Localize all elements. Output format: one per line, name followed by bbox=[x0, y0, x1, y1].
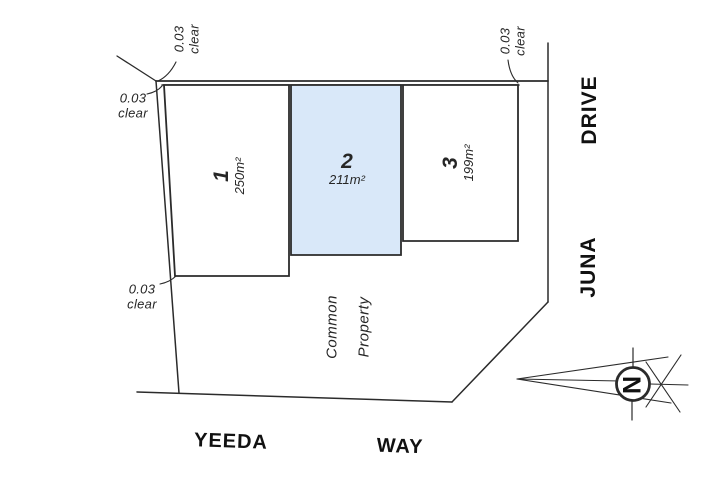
north-flare-line-2 bbox=[646, 355, 681, 407]
north-needle-mid-line bbox=[517, 379, 620, 381]
north-arrow-icon bbox=[517, 348, 688, 420]
north-flare-line-1 bbox=[646, 362, 680, 412]
leader-bottom-left bbox=[160, 276, 176, 284]
lot-1-label: 1 250m² bbox=[211, 158, 249, 195]
site-plan-canvas: 0.03 clear 0.03 clear 0.03 clear 0.03 cl… bbox=[0, 0, 712, 480]
lot-2-label: 2 211m² bbox=[329, 151, 365, 189]
clearance-label-left: 0.03 clear bbox=[118, 91, 148, 122]
lot-2-area: 211m² bbox=[329, 172, 365, 189]
leader-top-left bbox=[158, 62, 176, 81]
street-label-juna: JUNA bbox=[577, 236, 601, 297]
lot-1-number: 1 bbox=[211, 158, 232, 195]
clearance-label-top-left: 0.03 clear bbox=[172, 24, 203, 54]
clearance-label-top-right: 0.03 clear bbox=[498, 26, 529, 56]
lot-2-number: 2 bbox=[329, 151, 365, 172]
clearance-label-bottom-left: 0.03 clear bbox=[127, 282, 157, 313]
boundary-topleft-extension-line bbox=[117, 56, 156, 81]
plan-linework bbox=[0, 0, 712, 480]
lot-3-number: 3 bbox=[440, 145, 461, 182]
north-letter: N bbox=[619, 376, 648, 394]
leader-left bbox=[147, 86, 162, 94]
common-property-label: Common Property bbox=[317, 295, 380, 359]
lot-3-area: 199m² bbox=[461, 145, 478, 182]
lot-3-label: 3 199m² bbox=[440, 145, 478, 182]
lot-1-area: 250m² bbox=[232, 158, 249, 195]
street-label-way: WAY bbox=[376, 435, 424, 460]
leader-top-right bbox=[508, 60, 518, 83]
boundary-bottom-line bbox=[137, 392, 452, 402]
street-label-yeeda: YEEDA bbox=[194, 429, 269, 455]
north-east-line bbox=[650, 384, 688, 385]
street-label-drive: DRIVE bbox=[578, 75, 602, 144]
boundary-diagonal-line bbox=[452, 302, 548, 402]
